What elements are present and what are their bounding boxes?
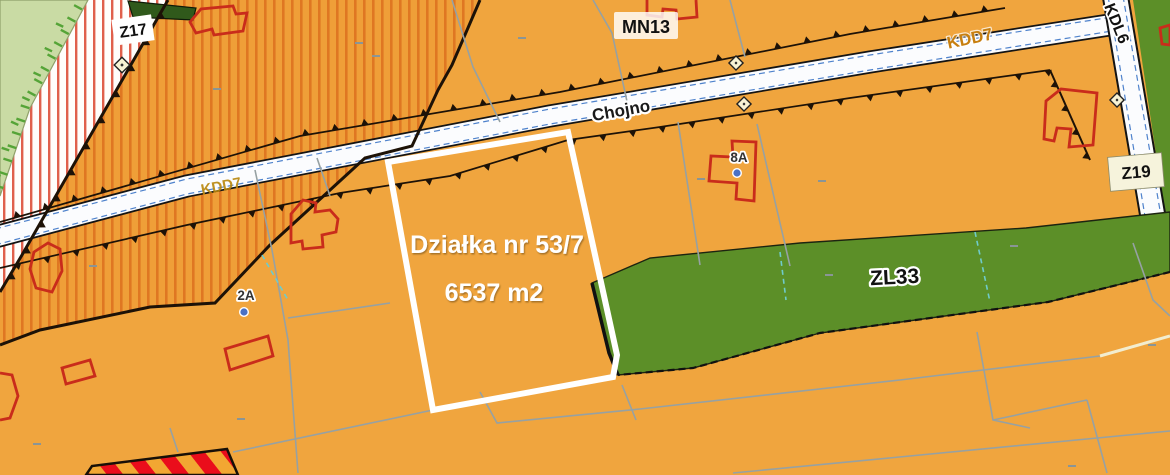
zone-label-z19[interactable]: Z19 xyxy=(1108,153,1165,192)
zone-label-mn13[interactable]: MN13 xyxy=(614,12,678,39)
zone-label-zl33: ZL33 xyxy=(870,265,920,291)
marker-8a-text: 8A xyxy=(730,150,748,165)
zone-label-z17[interactable]: Z17 xyxy=(111,14,154,45)
marker-2a-text: 2A xyxy=(237,288,255,303)
mn13-label-text: MN13 xyxy=(622,17,670,37)
zl33-label-text: ZL33 xyxy=(870,265,920,291)
parcel-area-text: 6537 m2 xyxy=(445,279,544,307)
marker-8a-dot-icon[interactable] xyxy=(733,169,742,178)
zoning-map-canvas[interactable]: Z17 MN13 KDD7 KDD7 KDL6 Chojno Z19 ZL33 … xyxy=(0,0,1170,475)
parcel-title-text: Działka nr 53/7 xyxy=(410,231,584,259)
zoning-map-viewport[interactable]: Z17 MN13 KDD7 KDD7 KDL6 Chojno Z19 ZL33 … xyxy=(0,0,1170,475)
z19-label-text: Z19 xyxy=(1121,162,1152,183)
marker-2a-dot-icon[interactable] xyxy=(240,308,249,317)
